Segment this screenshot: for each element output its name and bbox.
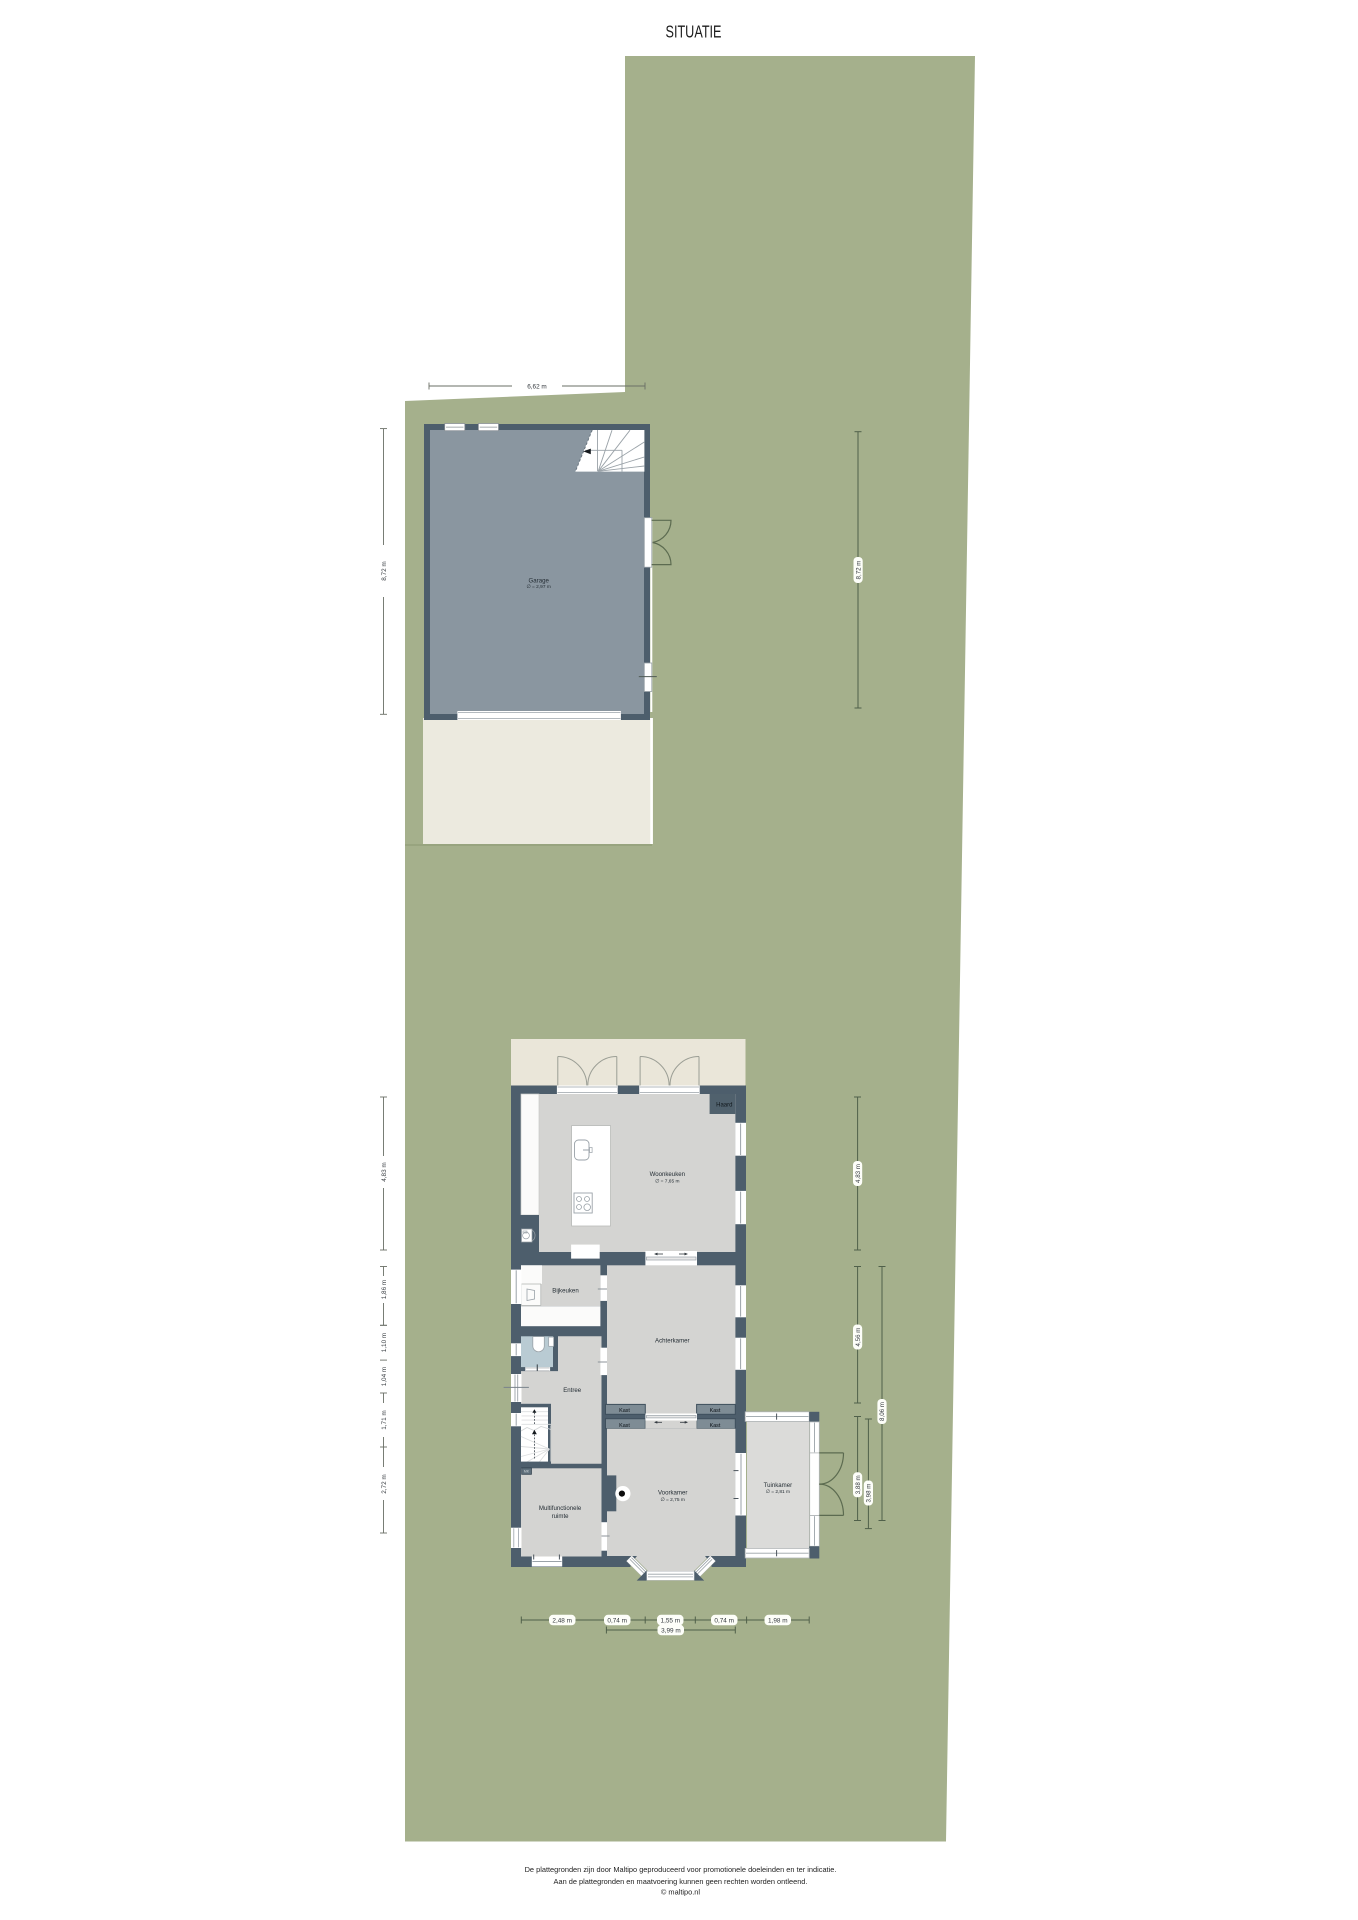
svg-text:3,98 m: 3,98 m bbox=[866, 1484, 873, 1503]
svg-text:MK: MK bbox=[524, 1470, 530, 1474]
svg-text:Entree: Entree bbox=[563, 1387, 582, 1394]
svg-text:1,10 m: 1,10 m bbox=[381, 1333, 388, 1353]
svg-text:© maltipo.nl: © maltipo.nl bbox=[661, 1887, 700, 1896]
svg-text:4,83 m: 4,83 m bbox=[381, 1162, 388, 1182]
svg-text:1,55 m: 1,55 m bbox=[661, 1618, 681, 1625]
svg-text:4,56 m: 4,56 m bbox=[855, 1328, 862, 1347]
svg-text:Voorkamer: Voorkamer bbox=[658, 1490, 687, 1497]
svg-text:6,62 m: 6,62 m bbox=[527, 384, 547, 391]
svg-text:∅ = 7,65 m: ∅ = 7,65 m bbox=[655, 1178, 679, 1184]
svg-text:1,98 m: 1,98 m bbox=[768, 1618, 788, 1625]
svg-text:Multifunctionele: Multifunctionele bbox=[539, 1505, 582, 1512]
svg-text:1,86 m: 1,86 m bbox=[381, 1280, 388, 1300]
svg-text:Kast: Kast bbox=[710, 1423, 721, 1429]
svg-text:∅ = 2,81 m: ∅ = 2,81 m bbox=[766, 1489, 790, 1495]
svg-text:ruimte: ruimte bbox=[552, 1513, 570, 1520]
svg-text:SITUATIE: SITUATIE bbox=[666, 22, 722, 42]
svg-text:Aan de plattegronden en maatvo: Aan de plattegronden en maatvoering kunn… bbox=[554, 1877, 808, 1886]
svg-text:Achterkamer: Achterkamer bbox=[655, 1337, 690, 1344]
svg-text:4,83 m: 4,83 m bbox=[855, 1164, 862, 1183]
svg-text:Tuinkamer: Tuinkamer bbox=[764, 1482, 793, 1489]
svg-text:3,99 m: 3,99 m bbox=[661, 1628, 681, 1635]
svg-text:Kast: Kast bbox=[619, 1408, 630, 1414]
svg-text:2,72 m: 2,72 m bbox=[381, 1474, 388, 1494]
svg-text:Garage: Garage bbox=[529, 578, 550, 585]
svg-text:0,74 m: 0,74 m bbox=[607, 1618, 627, 1625]
svg-text:Haard: Haard bbox=[716, 1103, 732, 1109]
svg-text:1,71 m: 1,71 m bbox=[381, 1410, 388, 1430]
svg-text:0,74 m: 0,74 m bbox=[714, 1618, 734, 1625]
svg-text:Kast: Kast bbox=[710, 1408, 721, 1414]
svg-text:Woonkeuken: Woonkeuken bbox=[650, 1171, 685, 1178]
svg-text:De plattegronden zijn door Mal: De plattegronden zijn door Maltipo gepro… bbox=[525, 1865, 837, 1874]
svg-text:1,04 m: 1,04 m bbox=[381, 1367, 388, 1387]
svg-text:∅ = 2,75 m: ∅ = 2,75 m bbox=[661, 1497, 685, 1503]
svg-text:Bijkeuken: Bijkeuken bbox=[552, 1287, 578, 1294]
svg-text:8,06 m: 8,06 m bbox=[879, 1402, 886, 1421]
svg-text:2,48 m: 2,48 m bbox=[552, 1618, 572, 1625]
svg-text:8,72 m: 8,72 m bbox=[855, 561, 862, 580]
svg-text:8,72 m: 8,72 m bbox=[381, 561, 388, 581]
svg-text:∅ = 2,97 m: ∅ = 2,97 m bbox=[527, 584, 551, 590]
svg-text:3,88 m: 3,88 m bbox=[855, 1475, 862, 1494]
svg-text:Kast: Kast bbox=[619, 1423, 630, 1429]
